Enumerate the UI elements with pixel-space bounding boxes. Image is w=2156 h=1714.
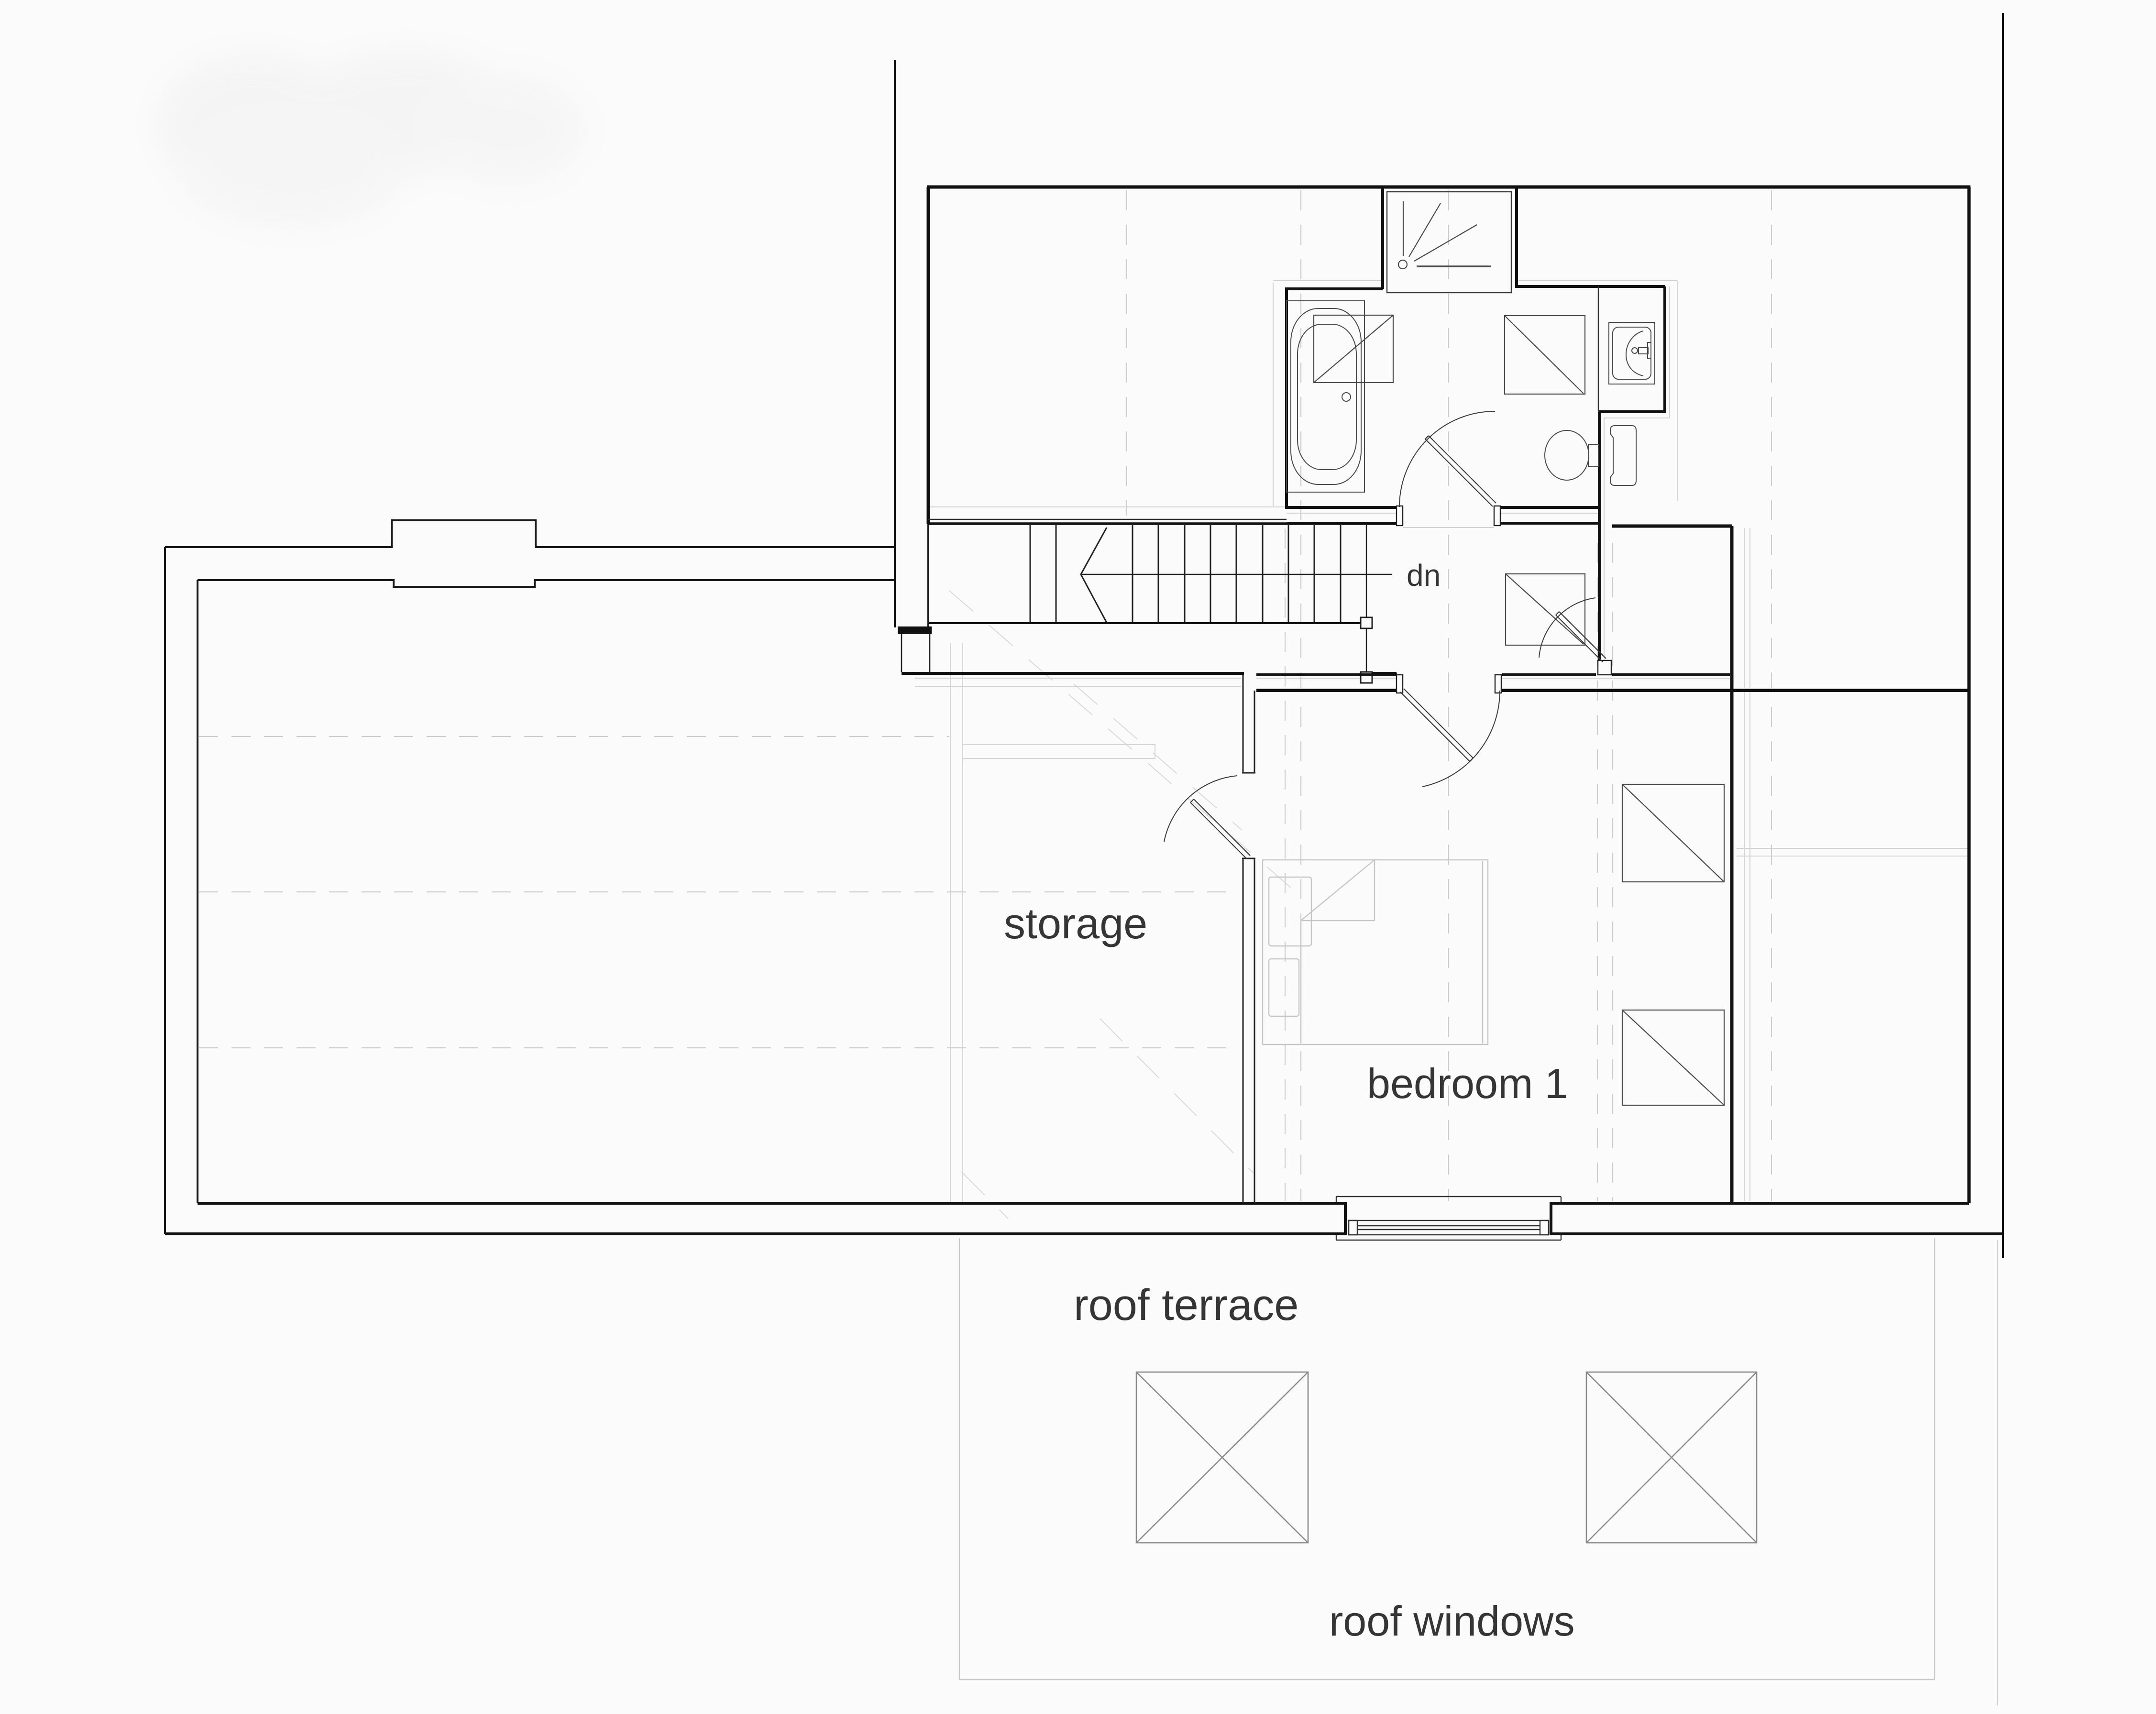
svg-text:dn: dn [1407,558,1441,593]
svg-text:roof windows: roof windows [1329,1597,1575,1645]
svg-text:roof terrace: roof terrace [1074,1281,1298,1329]
svg-text:storage: storage [1004,900,1147,948]
svg-text:bedroom 1: bedroom 1 [1367,1060,1568,1107]
